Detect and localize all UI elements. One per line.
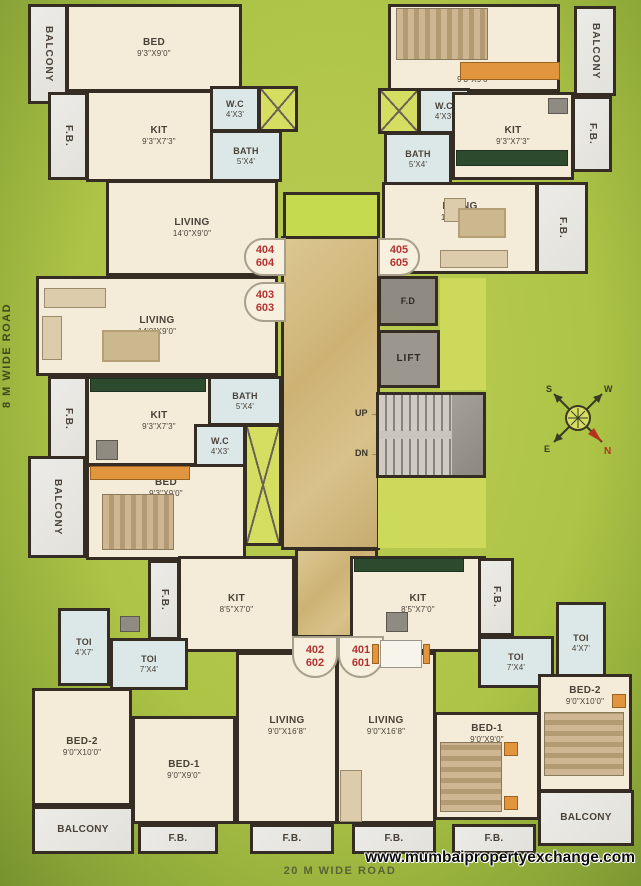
rug-icon: [458, 208, 506, 238]
room-fb-mid-left: F.B.: [48, 376, 88, 462]
room-dim: 4'X7': [572, 644, 590, 654]
room-fb-bottom-left-2: F.B.: [138, 824, 218, 854]
room-label: LIVING: [174, 217, 209, 229]
light-well: [378, 478, 486, 548]
room-balcony-bottom-right: BALCONY: [538, 790, 634, 846]
room-dim: 5'X4': [236, 402, 254, 412]
room-dim: 14'0"X9'0": [173, 229, 211, 239]
unit-label-405-605: 405605: [390, 244, 408, 269]
side-table-icon: [504, 742, 518, 756]
unit-label-403-603: 403603: [256, 289, 274, 314]
room-label: BED-2: [66, 736, 98, 748]
room-label: BATH: [232, 391, 258, 402]
floor-plan: BALCONY BED 9'3"X9'0" F.B. KIT 9'3"X7'3"…: [0, 0, 641, 886]
room-wc-mid-left: W.C 4'X3': [194, 424, 246, 468]
room-label: BATH: [233, 146, 259, 157]
room-label: LIVING: [269, 715, 304, 727]
room-dim: 9'0"X10'0": [566, 697, 604, 707]
corridor-lobby: [281, 236, 380, 550]
room-label: F.B.: [62, 125, 74, 147]
duct-shaft: [378, 88, 420, 134]
room-label: F.B.: [169, 833, 188, 845]
kitchen-counter: [354, 558, 464, 572]
watermark-url: www.mumbaipropertyexchange.com: [365, 849, 635, 867]
room-label: TOI: [508, 652, 524, 663]
sofa-icon: [340, 770, 362, 822]
unit-label-401-601: 401601: [352, 644, 370, 669]
room-label: F.B.: [385, 833, 404, 845]
room-label: BED-1: [168, 759, 200, 771]
compass-rose: S W E N: [538, 378, 618, 458]
stair-landing: [452, 395, 483, 475]
bed-icon: [396, 8, 488, 60]
room-label: LIVING: [139, 315, 174, 327]
sofa-icon: [44, 288, 106, 308]
room-fire-duct: F.D: [378, 276, 438, 326]
room-wc-top-left: W.C 4'X3': [210, 86, 260, 132]
room-dim: 7'X4': [507, 663, 525, 673]
duct-shaft: [258, 86, 298, 132]
room-dim: 9'3"X7'3": [142, 422, 176, 432]
compass-n: N: [604, 446, 611, 457]
stair-flight-up: [379, 395, 452, 431]
duct-shaft: [244, 424, 282, 546]
room-dim: 9'3"X7'3": [142, 137, 176, 147]
room-dim: 4'X7': [75, 648, 93, 658]
sofa-icon: [42, 316, 62, 360]
room-label: F.B.: [62, 408, 74, 430]
room-label: BALCONY: [57, 824, 109, 836]
room-label: BALCONY: [589, 23, 601, 79]
room-fb-bottom-left-3: F.B.: [250, 824, 334, 854]
stairs-down-label: DN →: [355, 448, 380, 458]
room-bed1-bottom-left: BED-1 9'0"X9'0": [132, 716, 236, 824]
room-dim: 9'0"X16'8": [367, 727, 405, 737]
room-label: F.B.: [490, 586, 502, 608]
door-swing-404: 404604: [244, 238, 286, 276]
room-dim: 4'X3': [226, 110, 244, 120]
kitchen-counter: [90, 378, 206, 392]
room-label: TOI: [573, 633, 589, 644]
dining-table-icon: [380, 640, 422, 668]
room-dim: 7'X4': [140, 665, 158, 675]
room-kit-bottom-left: KIT 8'5"X7'0": [178, 556, 295, 652]
light-well: [440, 278, 486, 390]
room-dim: 5'X4': [409, 160, 427, 170]
room-bed2-bottom-left: BED-2 9'0"X10'0": [32, 688, 132, 806]
room-label: W.C: [435, 101, 453, 112]
room-bath-top-left: BATH 5'X4': [210, 130, 282, 182]
side-table-icon: [612, 694, 626, 708]
room-fb-top-left: F.B.: [48, 92, 88, 180]
room-dim: 9'0"X16'8": [268, 727, 306, 737]
room-label: F.B.: [158, 589, 170, 611]
fridge-icon: [96, 440, 118, 460]
room-label: F.B.: [283, 833, 302, 845]
stairs-up-label: UP →: [355, 408, 379, 418]
room-fb-bottom-right: F.B.: [478, 558, 514, 636]
room-dim: 4'X3': [435, 112, 453, 122]
room-toi-1-bottom-left: TOI 4'X7': [58, 608, 110, 686]
bed-icon: [102, 494, 174, 550]
room-dim: 9'0"X10'0": [63, 748, 101, 758]
room-label: F.B.: [485, 833, 504, 845]
room-dim: 8'5"X7'0": [220, 605, 254, 615]
room-label: KIT: [150, 125, 167, 137]
wardrobe-icon: [90, 466, 190, 480]
room-label: KIT: [409, 593, 426, 605]
room-toi-2-bottom-left: TOI 7'X4': [110, 638, 188, 690]
door-swing-403: 403603: [244, 282, 286, 322]
kitchen-counter: [456, 150, 568, 166]
door-swing-405: 405605: [378, 238, 420, 276]
room-balcony-mid-left: BALCONY: [28, 456, 86, 558]
room-label: KIT: [150, 410, 167, 422]
rug-icon: [102, 330, 160, 362]
bed-icon: [544, 712, 624, 776]
fridge-icon: [120, 616, 140, 632]
room-label: BATH: [405, 149, 431, 160]
compass-e: E: [544, 444, 550, 454]
room-balcony-bottom-left: BALCONY: [32, 806, 134, 854]
room-label: TOI: [76, 637, 92, 648]
room-label: W.C: [226, 99, 244, 110]
room-label: F.D: [401, 296, 415, 307]
fridge-icon: [386, 612, 408, 632]
road-label-left: 8 M WIDE ROAD: [1, 240, 13, 470]
lift: LIFT: [378, 330, 440, 388]
room-label: F.B.: [586, 123, 598, 145]
room-label: KIT: [504, 125, 521, 137]
room-fb-top-right-2: F.B.: [536, 182, 588, 274]
room-label: LIVING: [368, 715, 403, 727]
room-label: BALCONY: [51, 479, 63, 535]
room-label: W.C: [211, 436, 229, 447]
unit-label-402-602: 402602: [306, 644, 324, 669]
compass-s: S: [546, 384, 552, 394]
side-table-icon: [504, 796, 518, 810]
room-dim: 5'X4': [237, 157, 255, 167]
room-bed-top-left: BED 9'3"X9'0": [66, 4, 242, 92]
room-label: BED: [143, 37, 165, 49]
room-balcony-top-left: BALCONY: [28, 4, 68, 104]
room-label: TOI: [141, 654, 157, 665]
room-fb-top-right: F.B.: [572, 96, 612, 172]
sofa-icon: [440, 250, 508, 268]
room-dim: 9'3"X9'0": [137, 49, 171, 59]
chair-icon: [372, 644, 379, 664]
room-dim: 9'3"X7'3": [496, 137, 530, 147]
chair-icon: [423, 644, 430, 664]
room-label: LIFT: [396, 353, 421, 365]
room-balcony-top-right: BALCONY: [574, 6, 616, 96]
compass-w: W: [604, 384, 613, 394]
wardrobe-icon: [460, 62, 560, 80]
room-living-bottom-left: LIVING 9'0"X16'8": [236, 652, 338, 824]
room-label: KIT: [228, 593, 245, 605]
room-bath-top-right: BATH 5'X4': [384, 132, 452, 186]
room-toi-1-bottom-right: TOI 4'X7': [556, 602, 606, 684]
room-label: BED-1: [471, 723, 503, 735]
room-label: F.B.: [556, 217, 568, 239]
room-bath-mid-left: BATH 5'X4': [208, 376, 282, 426]
room-dim: 4'X3': [211, 447, 229, 457]
room-fb-bottom-left: F.B.: [148, 560, 180, 640]
staircase: [376, 392, 486, 478]
room-dim: 9'0"X9'0": [167, 771, 201, 781]
fridge-icon: [548, 98, 568, 114]
room-label: BED-2: [569, 685, 601, 697]
room-label: BALCONY: [42, 26, 54, 82]
bed-icon: [440, 742, 502, 812]
room-label: BALCONY: [560, 812, 612, 824]
unit-label-404-604: 404604: [256, 244, 274, 269]
stair-flight-down: [379, 439, 452, 475]
courtyard: [283, 192, 380, 239]
